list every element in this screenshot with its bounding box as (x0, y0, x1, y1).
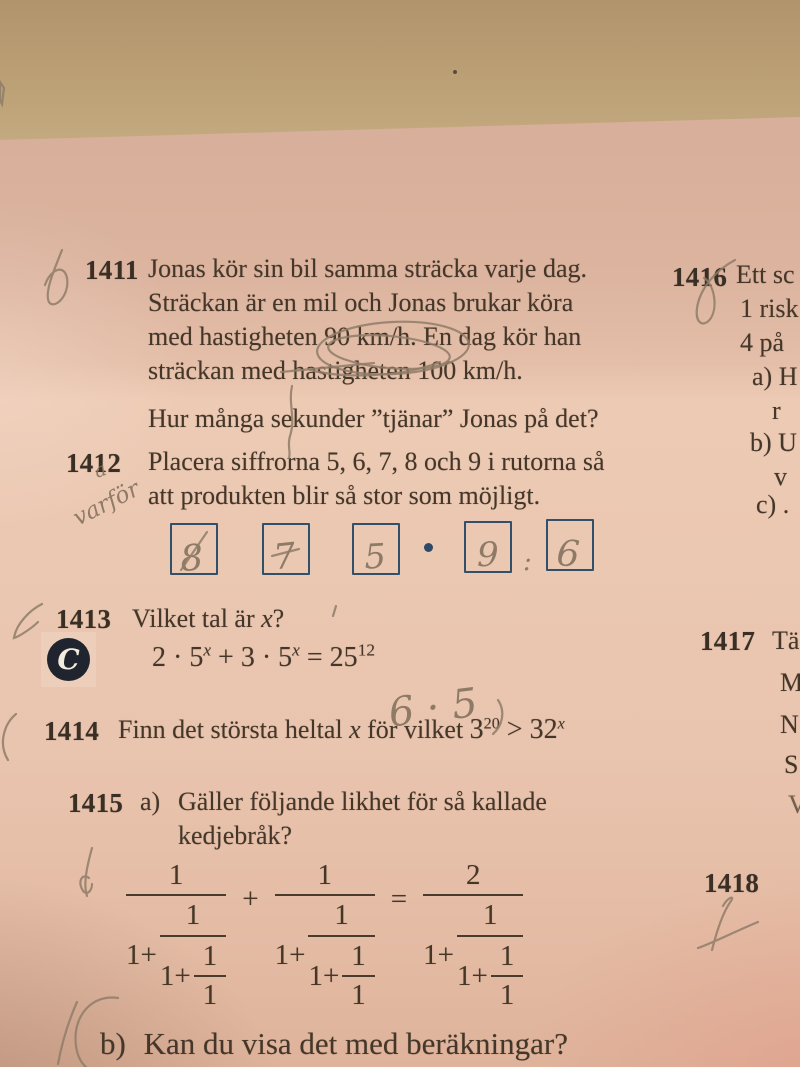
denominator: 1 (500, 977, 515, 1010)
one-plus: 1+ (308, 961, 339, 991)
problem-number-1417: 1417 (700, 626, 755, 657)
denominator: 1 (351, 977, 366, 1010)
numerator: 1 (457, 900, 523, 936)
one-plus: 1+ (423, 940, 454, 970)
one-plus: 1+ (275, 940, 306, 970)
fragment-line: V (788, 790, 800, 820)
subtask-b-text: Kan du visa det med beräkningar? (144, 1026, 568, 1061)
fragment-line: S (784, 750, 798, 780)
problem-1415-text: Gäller följande likhet för så kallade ke… (178, 785, 658, 853)
problem-number-1418: 1418 (704, 868, 759, 899)
title-text: ? (273, 604, 285, 633)
problem-1412-text: Placera siffrorna 5, 6, 7, 8 och 9 i rut… (148, 445, 668, 513)
numerator: 1 (342, 941, 375, 977)
text-line: Sträckan är en mil och Jonas brukar köra (148, 286, 668, 320)
exponent: x (558, 715, 565, 732)
subtask-b-line: b) Kan du visa det med beräkningar? (100, 1026, 568, 1062)
one-plus: 1+ (160, 961, 191, 991)
text-line: Gäller följande likhet för så kallade (178, 785, 658, 819)
text-line: med hastigheten 90 km/h. En dag kör han (148, 320, 668, 354)
text-line: Placera siffrorna 5, 6, 7, 8 och 9 i rut… (148, 445, 668, 479)
eq-part: + 3 · 5 (211, 642, 292, 673)
numerator: 1 (194, 941, 227, 977)
problem-1414-text: Finn det största heltal x för vilket 320… (118, 713, 565, 747)
continued-fraction-1: 1 1+ 1 1+ 1 1 (126, 860, 226, 1011)
variable-x: x (261, 604, 273, 633)
answer-box-5 (546, 519, 594, 571)
problem-number-1413: 1413 (56, 604, 111, 635)
numerator: 1 (275, 860, 375, 896)
problem-number-1415: 1415 (68, 788, 123, 819)
answer-box-3 (352, 523, 400, 575)
base: 32 (530, 714, 558, 745)
difficulty-badge-c: C (47, 638, 90, 681)
text-line: Jonas kör sin bil samma sträcka varje da… (148, 252, 668, 286)
equals-sign: = (391, 884, 407, 914)
continued-fraction-equation: 1 1+ 1 1+ 1 1 + (126, 860, 523, 1011)
fragment-line: r (772, 396, 781, 426)
answer-box-4 (464, 521, 512, 573)
fragment-line: N (780, 710, 799, 740)
fragment-line: a) H (752, 362, 797, 392)
fragment-line: 1 risk (740, 294, 799, 324)
exponent: x (292, 641, 300, 660)
problem-1413-title: Vilket tal är x? (132, 602, 284, 636)
continued-fraction-3: 2 1+ 1 1+ 1 1 (423, 860, 523, 1011)
subtask-a-label: a) (140, 785, 160, 819)
page-content: 1411 Jonas kör sin bil samma sträcka var… (0, 0, 800, 1067)
question-line: Hur många sekunder ”tjänar” Jonas på det… (148, 402, 668, 436)
fragment-line: Tä (772, 626, 799, 656)
numerator: 2 (423, 860, 523, 896)
answer-box-2 (262, 523, 310, 575)
plus-sign: + (242, 884, 258, 914)
title-text: Vilket tal är (132, 604, 261, 633)
text-line: sträckan med hastigheten 100 km/h. (148, 354, 668, 388)
one-plus: 1+ (457, 961, 488, 991)
numerator: 1 (160, 900, 226, 936)
textbook-page-photo: 1411 Jonas kör sin bil samma sträcka var… (0, 0, 800, 1067)
problem-1411-text: Jonas kör sin bil samma sträcka varje da… (148, 252, 668, 436)
problem-number-1414: 1414 (44, 716, 99, 747)
text: Finn det största heltal (118, 715, 349, 744)
fragment-line: c) . (756, 490, 789, 520)
denominator: 1 (203, 977, 218, 1010)
eq-part: 2 · 5 (152, 642, 203, 673)
answer-box-1 (170, 523, 218, 575)
eq-part: = 25 (300, 642, 358, 673)
exponent: 12 (358, 641, 375, 660)
one-plus: 1+ (126, 940, 157, 970)
equation-1413: 2 · 5x + 3 · 5x = 2512 (152, 642, 375, 674)
text: för vilket (361, 715, 470, 744)
exponent: 20 (484, 715, 500, 732)
fragment-line: b) U (750, 428, 797, 458)
base: 3 (470, 714, 484, 745)
fragment-line: 4 på (740, 328, 784, 358)
continued-fraction-2: 1 1+ 1 1+ 1 1 (275, 860, 375, 1011)
variable-x: x (349, 715, 361, 744)
fragment-line: M (780, 668, 800, 698)
text-line: kedjebråk? (178, 819, 658, 853)
numerator: 1 (491, 941, 524, 977)
problem-number-1411: 1411 (85, 255, 139, 286)
exponent: x (203, 641, 211, 660)
multiplication-dot (424, 543, 433, 552)
problem-number-1412: 1412 (66, 448, 121, 479)
text-line: att produkten blir så stor som möjligt. (148, 479, 668, 513)
fragment-line: Ett sc (736, 260, 795, 290)
numerator: 1 (126, 860, 226, 896)
numerator: 1 (308, 900, 374, 936)
problem-number-1416: 1416 (672, 262, 727, 293)
subtask-b-label: b) (100, 1026, 126, 1061)
fragment-line: v (774, 462, 787, 492)
inequality-sign: > (500, 714, 530, 745)
